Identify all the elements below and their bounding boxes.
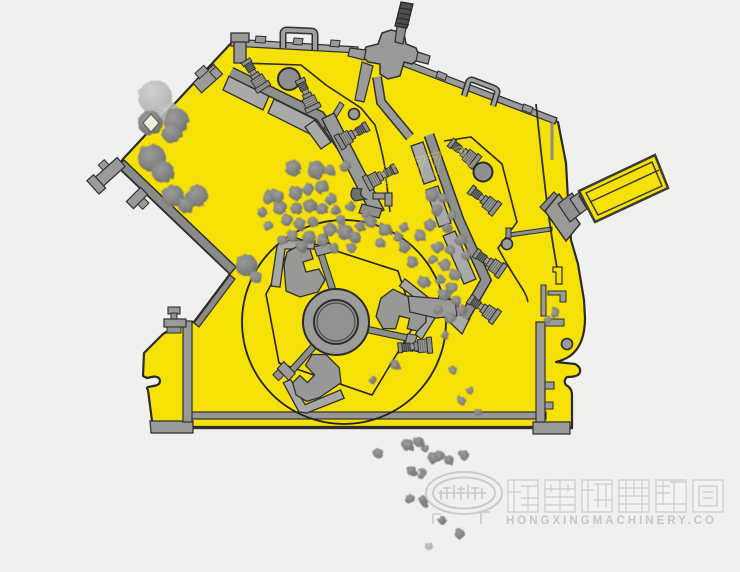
svg-text:HONGXINGMACHINERY.CO: HONGXINGMACHINERY.CO xyxy=(506,515,717,527)
